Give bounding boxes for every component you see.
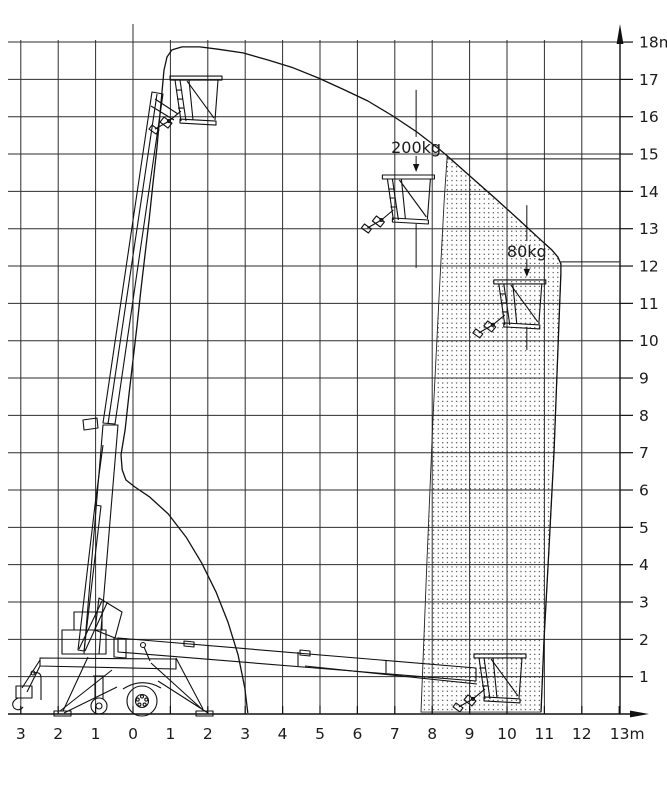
y-axis-tick-label: 3	[639, 594, 649, 612]
x-axis-tick-label: 10	[497, 725, 517, 743]
y-axis-tick-label: 12	[639, 258, 659, 276]
y-axis-tick-label: 17	[639, 71, 659, 89]
platform-max-height	[149, 76, 222, 134]
x-axis-tick-label: 12	[572, 725, 592, 743]
right-arrow-icon	[630, 711, 649, 718]
y-axis-tick-label: 16	[639, 108, 659, 126]
x-axis-tick-label: 4	[278, 725, 288, 743]
y-axis-tick-label: 5	[639, 519, 649, 537]
y-axis-tick-label: 11	[639, 295, 659, 313]
y-axis-tick-label: 8	[639, 407, 649, 425]
x-axis-tick-label: 13m	[610, 725, 645, 743]
y-axis-tick-label: 6	[639, 482, 649, 500]
x-axis-tick-label: 6	[352, 725, 362, 743]
x-axis-tick-label: 1	[165, 725, 175, 743]
y-axis-tick-label: 15	[639, 146, 659, 164]
turret	[62, 598, 122, 654]
y-axis-tick-label: 10	[639, 332, 659, 350]
y-axis-tick-label: 7	[639, 444, 649, 462]
y-axis-tick-label: 14	[639, 183, 659, 201]
load-label: 200kg	[391, 138, 441, 157]
x-axis-tick-label: 0	[128, 725, 138, 743]
load-label: 80kg	[507, 242, 547, 261]
x-axis-tick-label: 1	[91, 725, 101, 743]
diagram-canvas: 200kg80kg 123456789101112131415161718m32…	[0, 0, 667, 785]
y-axis-tick-label: 2	[639, 631, 649, 649]
y-axis-tick-label: 18m	[639, 34, 667, 52]
y-axis-tick-label: 9	[639, 370, 649, 388]
y-axis-tick-label: 1	[639, 668, 649, 686]
platform-200kg-zone	[361, 175, 434, 233]
x-axis-tick-label: 8	[427, 725, 437, 743]
x-axis-tick-label: 3	[16, 725, 26, 743]
working-range-diagram: 200kg80kg 123456789101112131415161718m32…	[0, 0, 667, 785]
y-axis-tick-label: 4	[639, 556, 649, 574]
x-axis-tick-label: 11	[535, 725, 555, 743]
up-arrow-icon	[617, 24, 624, 44]
x-axis-tick-label: 2	[53, 725, 63, 743]
y-axis-tick-label: 13	[639, 220, 659, 238]
x-axis-tick-label: 7	[390, 725, 400, 743]
x-axis-tick-label: 3	[240, 725, 250, 743]
road-wheel	[127, 686, 157, 716]
x-axis-tick-label: 2	[203, 725, 213, 743]
telescopic-mast-raised	[78, 92, 178, 654]
x-axis-tick-label: 5	[315, 725, 325, 743]
x-axis-tick-label: 9	[465, 725, 475, 743]
down-arrow-icon	[413, 164, 419, 172]
jockey-wheel	[91, 698, 107, 714]
